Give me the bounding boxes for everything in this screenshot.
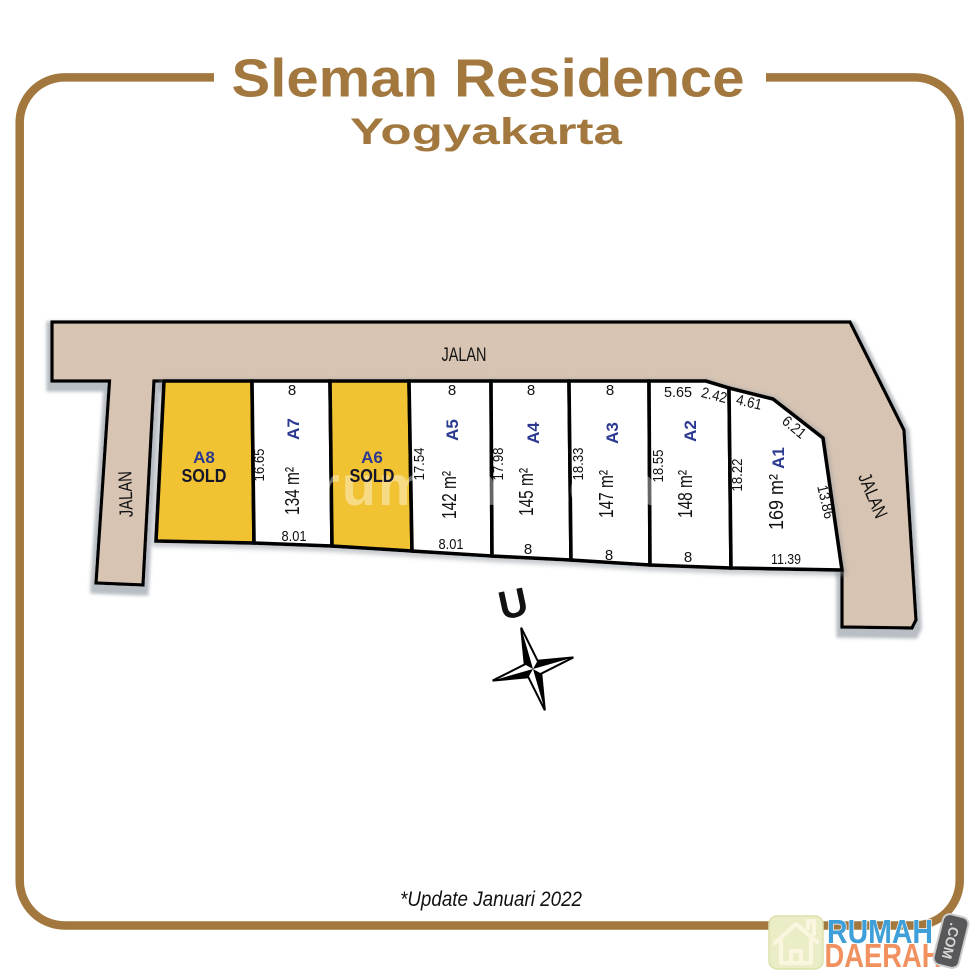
svg-text:A4: A4: [524, 422, 543, 444]
svg-text:145 m²: 145 m²: [516, 468, 538, 516]
svg-text:JALAN: JALAN: [115, 471, 138, 518]
svg-text:142 m²: 142 m²: [439, 471, 461, 519]
svg-text:A3: A3: [603, 422, 622, 444]
svg-text:8: 8: [606, 382, 614, 399]
svg-text:8: 8: [288, 382, 296, 399]
svg-text:U: U: [495, 580, 532, 629]
svg-text:16.65: 16.65: [251, 449, 268, 482]
svg-text:SOLD: SOLD: [350, 466, 395, 486]
svg-text:DAERAH: DAERAH: [825, 937, 942, 974]
svg-text:134 m²: 134 m²: [282, 467, 304, 515]
svg-text:5.65: 5.65: [664, 384, 692, 401]
svg-text:A7: A7: [284, 418, 303, 440]
svg-text:A2: A2: [681, 420, 700, 442]
svg-text:A1: A1: [769, 447, 788, 469]
svg-text:Sleman Residence: Sleman Residence: [232, 49, 745, 109]
svg-text:18.55: 18.55: [650, 450, 667, 483]
svg-text:JALAN: JALAN: [442, 345, 487, 366]
svg-text:18.33: 18.33: [570, 448, 587, 481]
svg-text:17.98: 17.98: [490, 448, 507, 481]
svg-text:8: 8: [684, 549, 692, 566]
svg-text:8: 8: [605, 547, 613, 564]
svg-text:*Update Januari 2022: *Update Januari 2022: [400, 888, 582, 911]
svg-text:8: 8: [448, 382, 456, 399]
svg-text:8: 8: [524, 541, 532, 558]
svg-text:8.01: 8.01: [439, 536, 464, 553]
svg-text:A5: A5: [443, 419, 462, 441]
svg-text:11.39: 11.39: [771, 551, 801, 568]
svg-text:A6: A6: [361, 448, 383, 467]
svg-text:8.01: 8.01: [282, 528, 307, 545]
svg-text:Yogyakarta: Yogyakarta: [350, 111, 623, 152]
svg-text:17.54: 17.54: [411, 448, 428, 481]
svg-text:147 m²: 147 m²: [596, 470, 618, 518]
svg-text:148 m²: 148 m²: [675, 470, 697, 518]
svg-text:8: 8: [527, 382, 535, 399]
svg-text:A8: A8: [193, 448, 215, 467]
svg-text:SOLD: SOLD: [182, 466, 227, 486]
svg-text:169 m²: 169 m²: [766, 474, 788, 530]
svg-text:18.22: 18.22: [729, 459, 746, 492]
